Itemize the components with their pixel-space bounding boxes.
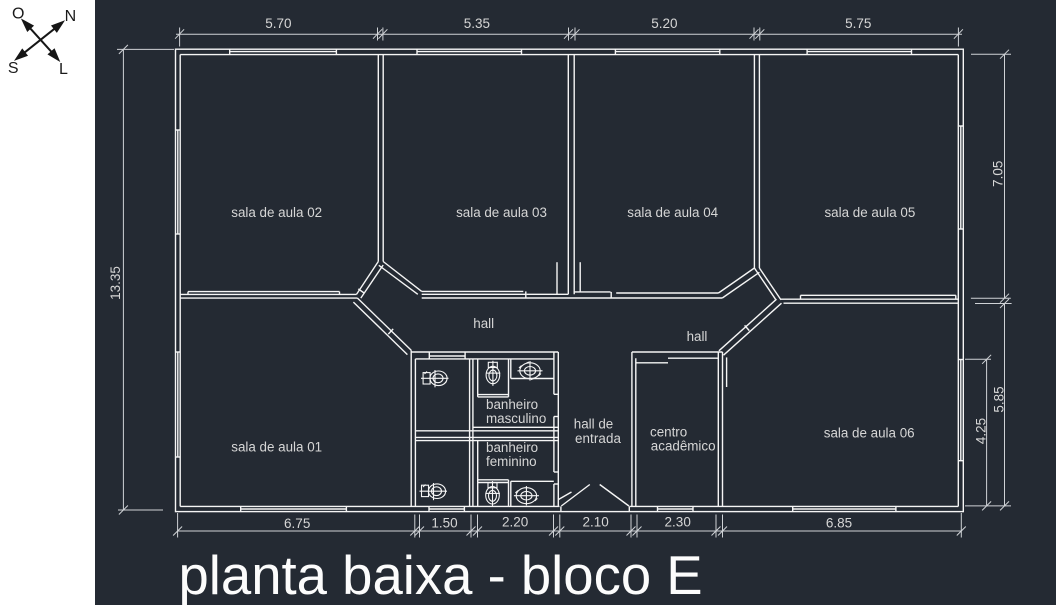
svg-text:2.10: 2.10	[582, 515, 608, 530]
svg-text:2.30: 2.30	[665, 515, 691, 530]
svg-text:6.75: 6.75	[284, 516, 310, 531]
svg-text:sala de aula 03: sala de aula 03	[456, 205, 547, 220]
svg-text:planta baixa - bloco E: planta baixa - bloco E	[179, 545, 703, 605]
svg-text:feminino: feminino	[486, 454, 537, 469]
svg-text:hall: hall	[687, 329, 708, 344]
svg-text:7.05: 7.05	[990, 161, 1005, 187]
svg-text:centro: centro	[650, 425, 687, 440]
svg-text:5.35: 5.35	[464, 16, 490, 31]
svg-text:sala de aula 04: sala de aula 04	[627, 205, 718, 220]
svg-text:5.70: 5.70	[265, 16, 291, 31]
svg-text:13.35: 13.35	[108, 266, 123, 300]
svg-text:S: S	[8, 60, 19, 77]
svg-text:L: L	[59, 61, 68, 78]
svg-text:banheiro: banheiro	[486, 440, 538, 455]
svg-text:2.20: 2.20	[502, 515, 528, 530]
svg-text:1.50: 1.50	[431, 516, 457, 531]
svg-text:4.25: 4.25	[973, 418, 988, 444]
svg-text:5.85: 5.85	[992, 386, 1007, 412]
svg-text:5.20: 5.20	[651, 16, 677, 31]
svg-text:banheiro: banheiro	[486, 397, 538, 412]
svg-text:sala de aula 05: sala de aula 05	[824, 205, 915, 220]
svg-text:sala de aula 06: sala de aula 06	[824, 426, 915, 441]
svg-text:sala de aula 01: sala de aula 01	[231, 440, 322, 455]
svg-text:O: O	[12, 6, 24, 23]
svg-text:acadêmico: acadêmico	[651, 439, 716, 454]
svg-text:masculino: masculino	[486, 411, 546, 426]
svg-text:N: N	[65, 8, 77, 25]
svg-text:hall: hall	[473, 316, 494, 331]
svg-text:entrada: entrada	[575, 431, 622, 446]
svg-text:hall de: hall de	[574, 416, 613, 431]
svg-text:5.75: 5.75	[845, 16, 871, 31]
svg-text:sala de aula 02: sala de aula 02	[231, 205, 322, 220]
svg-text:6.85: 6.85	[826, 516, 852, 531]
